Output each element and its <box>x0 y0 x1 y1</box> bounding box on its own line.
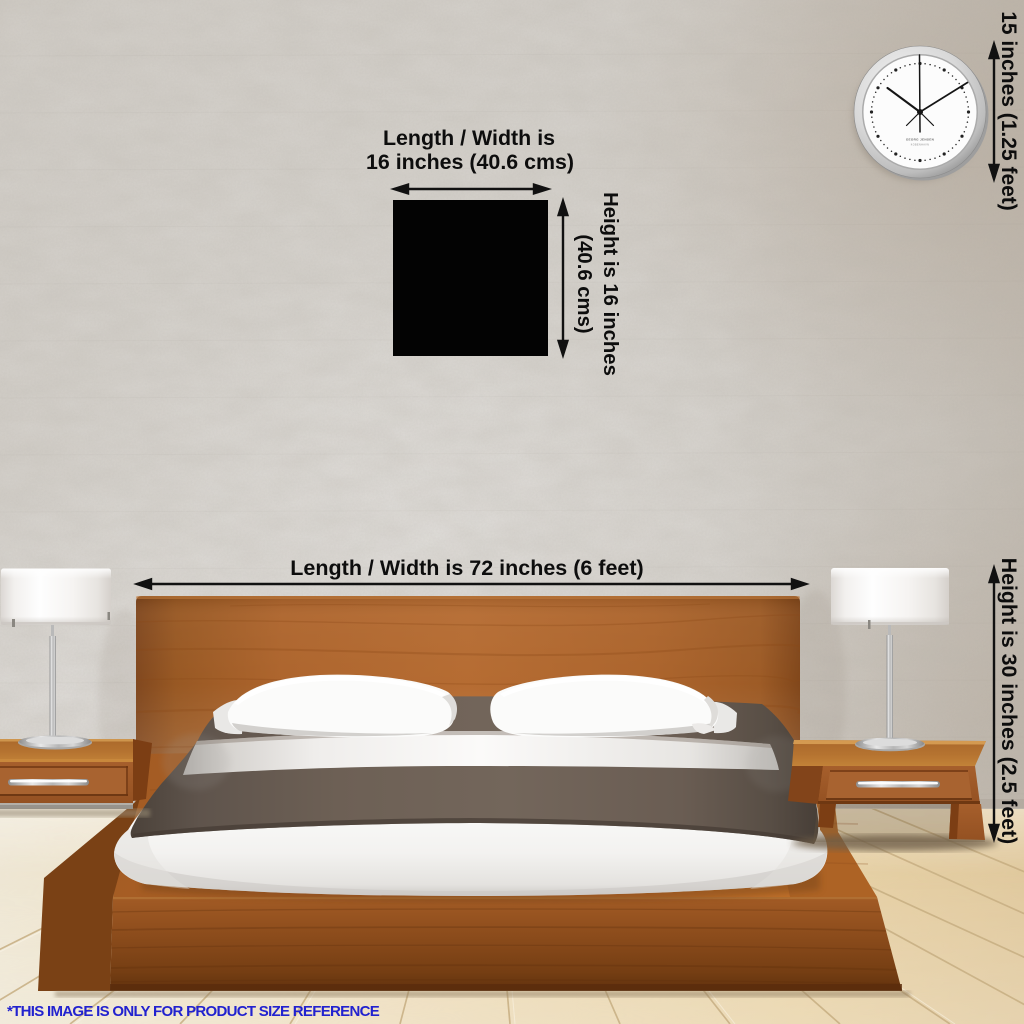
svg-text:Height is 16 inches: Height is 16 inches <box>599 192 621 376</box>
svg-text:(40.6 cms): (40.6 cms) <box>573 234 595 333</box>
svg-text:Height is 30 inches (2.5 feet): Height is 30 inches (2.5 feet) <box>997 558 1021 844</box>
svg-text:KOBENHAVN: KOBENHAVN <box>911 144 929 147</box>
svg-text:Length / Width is 72 inches (6: Length / Width is 72 inches (6 feet) <box>290 556 643 580</box>
svg-text:16 inches (40.6 cms): 16 inches (40.6 cms) <box>366 150 574 174</box>
svg-text:GEORG JENSEN: GEORG JENSEN <box>906 138 935 142</box>
svg-text:15 inches (1.25 feet): 15 inches (1.25 feet) <box>997 11 1020 211</box>
svg-text:Length / Width is: Length / Width is <box>383 126 555 150</box>
svg-text:*THIS IMAGE IS ONLY FOR PRODUC: *THIS IMAGE IS ONLY FOR PRODUCT SIZE REF… <box>7 1003 380 1020</box>
